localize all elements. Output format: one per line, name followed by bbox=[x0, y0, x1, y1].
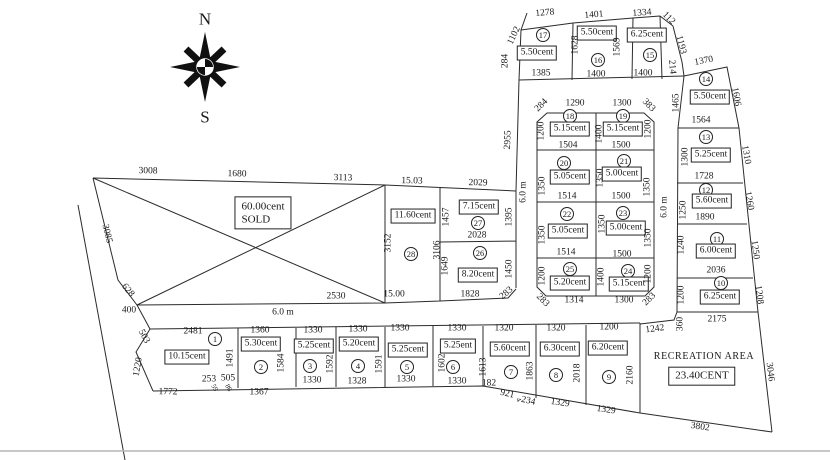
plot-8-area: 6.30cent bbox=[540, 342, 580, 357]
dim-p3-bottom: 1330 bbox=[303, 376, 322, 386]
dim-p28-left: 3152 bbox=[384, 234, 394, 253]
land-layout-plan: N S 3008 1680 3113 3085 628 400 2530 60.… bbox=[0, 0, 830, 460]
dim-p21-right: 1350 bbox=[643, 178, 653, 197]
dim-p26-left: 1649 bbox=[441, 257, 451, 276]
plot-27-area: 7.15cent bbox=[459, 200, 499, 215]
plot-23-area: 5.00cent bbox=[606, 221, 646, 236]
plot-3-number: 3 bbox=[303, 359, 317, 373]
dim-p26-right: 1450 bbox=[505, 260, 515, 279]
dim-p23-right: 1350 bbox=[644, 229, 654, 248]
compass-south-label: S bbox=[200, 109, 209, 126]
plot-13-number: 13 bbox=[699, 130, 713, 144]
dim-p14-left: 1465 bbox=[672, 94, 682, 113]
plot-28-area: 11.60cent bbox=[391, 209, 436, 224]
dim-mid-divider4: 1400 bbox=[597, 268, 607, 287]
dim-p19-top: 1300 bbox=[613, 99, 632, 109]
dim-rcol-below: 360 bbox=[676, 317, 686, 331]
dim-p16-bottom: 1400 bbox=[587, 70, 606, 80]
dim-sold-top2: 1680 bbox=[227, 170, 246, 180]
plot-14-area: 5.50cent bbox=[690, 90, 730, 105]
dim-p6-top: 1330 bbox=[448, 324, 467, 334]
dim-p1-b2: 505 bbox=[221, 374, 235, 384]
plot-3-area: 5.25cent bbox=[294, 339, 334, 354]
dim-p27-top: 2029 bbox=[468, 179, 487, 189]
dim-topblock-right2: 214 bbox=[666, 59, 677, 74]
dim-p7-b1: 182 bbox=[482, 379, 496, 389]
dim-p9-right: 2160 bbox=[626, 366, 636, 385]
plot-21-area: 5.00cent bbox=[602, 167, 642, 182]
dim-p11-bottom: 2036 bbox=[707, 266, 726, 276]
dim-sold-left3: 400 bbox=[122, 306, 136, 316]
dim-p4-top: 1330 bbox=[349, 325, 368, 335]
dim-p28-bottom: 15.00 bbox=[383, 290, 404, 300]
plot-6-area: 5.25ent bbox=[440, 339, 476, 354]
plot-17-number: 17 bbox=[536, 28, 550, 42]
plot-22-number: 22 bbox=[560, 207, 574, 221]
plot-5-area: 5.25cent bbox=[388, 343, 428, 358]
road-width-right: 6.0 m bbox=[660, 196, 670, 218]
plot-13-area: 5.25cent bbox=[691, 148, 731, 163]
dim-p13-bottom: 1728 bbox=[695, 172, 714, 182]
dim-p18-bottom: 1504 bbox=[559, 141, 578, 151]
dim-p10-right: 1208 bbox=[752, 285, 764, 305]
dim-topblock-left: 284 bbox=[501, 54, 511, 68]
dim-mid-divider1: 1400 bbox=[595, 125, 605, 144]
dim-p15-bottom: 1400 bbox=[634, 69, 653, 79]
plot-18-area: 5.15cent bbox=[550, 122, 590, 137]
plot-4-number: 4 bbox=[351, 359, 365, 373]
recreation-area-label: RECREATION AREA bbox=[654, 352, 754, 362]
plot-5-number: 5 bbox=[400, 360, 414, 374]
dim-p3-top: 1330 bbox=[304, 326, 323, 336]
dim-p27-left: 1457 bbox=[442, 208, 452, 227]
dim-mid-divider3: 1350 bbox=[598, 215, 608, 234]
plot-27-number: 27 bbox=[471, 216, 485, 230]
dim-p14-bottom: 1564 bbox=[692, 116, 711, 126]
dim-p19-right: 1200 bbox=[644, 120, 654, 139]
dim-p1-top: 2481 bbox=[184, 327, 203, 337]
plan-linework bbox=[0, 0, 830, 460]
plot-17-area: 5.50cent bbox=[517, 46, 557, 61]
plot-23-number: 23 bbox=[616, 206, 630, 220]
dim-p3-right: 1592 bbox=[326, 355, 336, 374]
dim-p17-bottom: 1385 bbox=[532, 69, 551, 79]
dim-p8-top: 1320 bbox=[547, 324, 566, 334]
plot-10-number: 10 bbox=[714, 276, 728, 290]
road-width-left: 6.0 m bbox=[519, 181, 529, 203]
dim-p28-top: 15.03 bbox=[401, 177, 423, 187]
compass-rose bbox=[170, 32, 240, 102]
dim-p16-top: 1401 bbox=[584, 10, 604, 21]
plot-26-area: 8.20cent bbox=[458, 268, 498, 283]
dim-p16-right: 1569 bbox=[613, 38, 623, 57]
dim-p13-right: 1310 bbox=[739, 145, 752, 165]
sold-plot-label: 60.00cent SOLD bbox=[234, 196, 291, 229]
sold-plot-area: 60.00cent bbox=[241, 200, 284, 213]
dim-p27-bottom: 2028 bbox=[468, 231, 487, 241]
dim-p12-bottom: 1890 bbox=[696, 213, 715, 223]
dim-p18-left: 1200 bbox=[537, 122, 547, 141]
dim-p25-left: 1200 bbox=[538, 267, 548, 286]
dim-p26-bottom: 1828 bbox=[461, 290, 480, 300]
dim-p8-right: 2018 bbox=[573, 364, 583, 383]
plot-1-number: 1 bbox=[208, 332, 222, 346]
dim-p15-top: 1334 bbox=[632, 9, 652, 20]
dim-p25-bottom: 1314 bbox=[565, 296, 584, 306]
dim-p14-right: 1606 bbox=[729, 87, 742, 107]
plot-25-area: 5.20cent bbox=[550, 276, 590, 291]
plot-12-area: 5.60cent bbox=[692, 194, 732, 209]
plot-16-number: 16 bbox=[591, 53, 605, 67]
dim-p21-bottom: 1500 bbox=[612, 192, 631, 202]
dim-p6-left: 1602 bbox=[438, 354, 448, 373]
dim-p19-bottom: 1500 bbox=[612, 141, 631, 151]
plot-1-area: 10.15cent bbox=[164, 350, 209, 365]
dim-p24-right: 1200 bbox=[644, 265, 654, 284]
plot-9-number: 9 bbox=[602, 370, 616, 384]
dim-p18-top: 1290 bbox=[566, 99, 585, 109]
plot-25-number: 25 bbox=[563, 262, 577, 276]
dim-rec-right: 3046 bbox=[763, 362, 775, 382]
dim-p7-top: 1320 bbox=[495, 324, 514, 334]
dim-p23-bottom: 1500 bbox=[613, 250, 632, 260]
dim-p12-left: 1250 bbox=[679, 201, 689, 220]
plot-7-area: 5.60cent bbox=[490, 342, 530, 357]
dim-p11-left: 1240 bbox=[677, 236, 687, 255]
dim-p13-left: 1300 bbox=[681, 148, 691, 167]
dim-p2-bottom: 1367 bbox=[250, 388, 269, 398]
plot-7-number: 7 bbox=[504, 365, 518, 379]
plot-15-number: 15 bbox=[643, 48, 657, 62]
dim-mid-divider2: 1350 bbox=[596, 169, 606, 188]
plot-20-number: 20 bbox=[557, 156, 571, 170]
road-width-bottom: 6.0 m bbox=[272, 308, 294, 318]
dim-sold-top3: 3113 bbox=[334, 174, 353, 184]
plot-20-area: 5.05cent bbox=[550, 170, 590, 185]
plot-8-number: 8 bbox=[549, 368, 563, 382]
dim-edge-2955: 2955 bbox=[504, 130, 514, 149]
dim-p7-right: 1863 bbox=[526, 362, 536, 381]
dim-p20-bottom: 1514 bbox=[558, 192, 577, 202]
dim-p4-bottom: 1328 bbox=[348, 377, 367, 387]
plot-2-area: 5.30cent bbox=[241, 337, 281, 352]
dim-p10-left: 1200 bbox=[677, 286, 687, 305]
plot-15-area: 6.25cent bbox=[627, 28, 667, 43]
dim-p17-top: 1278 bbox=[535, 8, 555, 19]
plot-6-number: 6 bbox=[446, 360, 460, 374]
plot-26-number: 26 bbox=[473, 246, 487, 260]
dim-p11-right: 1250 bbox=[748, 240, 760, 260]
plot-4-area: 5.20cent bbox=[339, 337, 379, 352]
dim-p27-right: 1395 bbox=[505, 208, 515, 227]
dim-sold-bottom: 2530 bbox=[327, 292, 346, 302]
sold-plot-status: SOLD bbox=[241, 213, 284, 226]
plot-2-number: 2 bbox=[254, 360, 268, 374]
dim-p1-right: 1491 bbox=[226, 349, 236, 368]
dim-p7-left: 1613 bbox=[479, 358, 489, 377]
dim-sold-top1: 3008 bbox=[138, 167, 157, 177]
dim-p12-right: 1260 bbox=[742, 191, 755, 211]
dim-p2-right: 1584 bbox=[277, 354, 287, 373]
plot-22-area: 5.05cent bbox=[548, 224, 588, 239]
plot-16-area: 5.50cent bbox=[577, 26, 617, 41]
plot-19-area: 5.15cent bbox=[603, 122, 643, 137]
recreation-area-size: 23.40CENT bbox=[668, 367, 735, 386]
dim-p6-bottom: 1330 bbox=[448, 377, 467, 387]
compass-north-label: N bbox=[199, 11, 211, 28]
dim-p22-left: 1350 bbox=[538, 226, 548, 245]
dim-p20-left: 1350 bbox=[538, 177, 548, 196]
plot-10-area: 6.25cent bbox=[700, 290, 740, 305]
dim-p2-top: 1360 bbox=[251, 326, 270, 336]
dim-p10-bottom: 2175 bbox=[708, 315, 727, 325]
dim-p9-top: 1200 bbox=[600, 323, 619, 333]
dim-p4-right: 1591 bbox=[375, 355, 385, 374]
dim-p5-bottom: 1330 bbox=[397, 375, 416, 385]
dim-p1-bottom: 1772 bbox=[158, 388, 177, 398]
dim-p5-top: 1330 bbox=[391, 324, 410, 334]
plot-11-area: 6.00cent bbox=[696, 244, 736, 259]
plot-9-area: 6.20cent bbox=[588, 341, 628, 356]
plot-28-number: 28 bbox=[404, 247, 418, 261]
plot-14-number: 14 bbox=[699, 72, 713, 86]
dim-p24-bottom: 1300 bbox=[615, 296, 634, 306]
dim-p22-bottom: 1514 bbox=[557, 248, 576, 258]
